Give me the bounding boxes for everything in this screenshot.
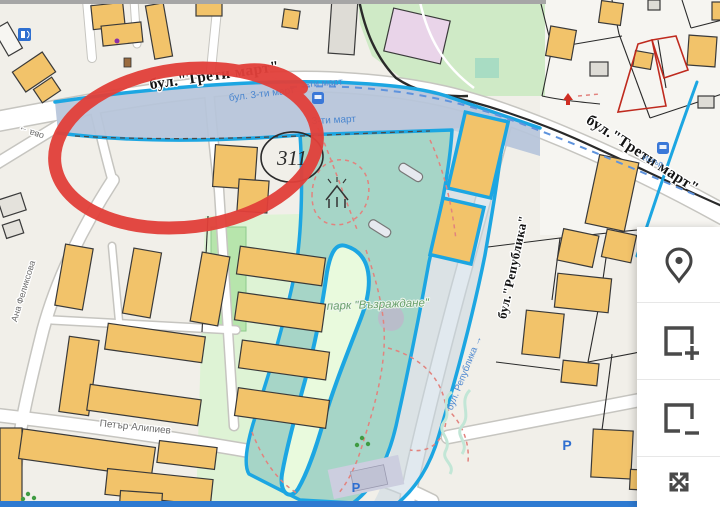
bus-stop-icon <box>312 92 324 104</box>
poi-dot <box>115 39 120 44</box>
bottom-blue-bar <box>0 501 637 507</box>
map-screenshot: 311 бул."Трети март" бул."Трети март" бу… <box>0 0 720 507</box>
map-canvas: 311 бул."Трети март" бул."Трети март" бу… <box>0 0 720 507</box>
expand-button[interactable] <box>637 457 720 507</box>
add-area-button[interactable] <box>637 303 720 380</box>
expand-icon <box>659 462 699 502</box>
parking-label-b: P <box>352 480 361 495</box>
place-marker-button[interactable] <box>637 227 720 303</box>
landmark-icon <box>124 58 131 67</box>
add-area-icon <box>659 321 699 361</box>
map-toolbar <box>637 227 720 507</box>
parking-label-a: P <box>562 437 571 453</box>
map-viewport[interactable]: 311 бул."Трети март" бул."Трети март" бу… <box>0 0 720 507</box>
location-marker-icon <box>659 245 699 285</box>
bus-stop-icon <box>657 142 669 154</box>
remove-area-icon <box>659 398 699 438</box>
library-icon <box>18 28 31 41</box>
remove-area-button[interactable] <box>637 380 720 457</box>
